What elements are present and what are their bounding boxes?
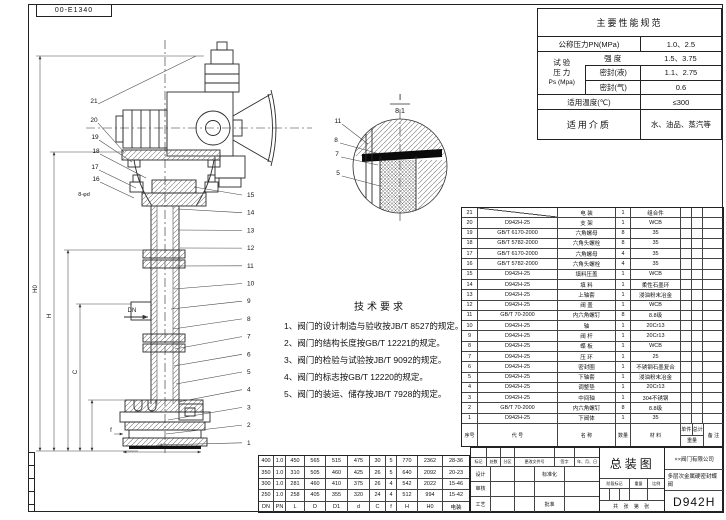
table-cell: 3 — [462, 393, 478, 402]
table-cell: 浸油粉末冶金 — [631, 290, 681, 299]
table-cell: 565 — [305, 456, 326, 466]
spec-seal-liquid-label: 密封(液) — [585, 66, 639, 80]
balloon-label: 7 — [335, 151, 339, 158]
balloon-label: 13 — [247, 227, 255, 234]
table-cell: D942H-25 — [478, 362, 558, 371]
table-cell — [692, 414, 703, 423]
table-cell: 8 — [616, 403, 631, 412]
table-cell — [703, 290, 723, 299]
table-cell: 2022 — [418, 479, 443, 489]
table-cell: 1 — [616, 414, 631, 423]
table-cell: 柔性石墨环 — [631, 280, 681, 289]
table-cell: 20-23 — [443, 467, 469, 477]
table-cell: GB/T 5782-2000 — [478, 259, 558, 268]
table-cell: 1.0 — [274, 479, 286, 489]
table-cell: 8 — [616, 229, 631, 238]
table-cell: 8 — [616, 239, 631, 248]
table-cell: 15-42 — [443, 490, 469, 500]
table-cell — [703, 373, 723, 382]
leader-line — [178, 209, 242, 213]
table-row: 14D942H-25填 料1柔性石墨环 — [462, 280, 723, 290]
table-cell: D942H-25 — [478, 301, 558, 310]
table-cell: 六角螺母 — [558, 229, 616, 238]
table-cell — [681, 352, 692, 361]
detail-view-scale: 8:1 — [395, 108, 405, 115]
stage-mark-label: 阶段标记 — [600, 479, 630, 489]
balloon-label: 2 — [247, 422, 251, 429]
table-cell: 1 — [616, 383, 631, 392]
revision-header-row: 标记 处数 分区 更改文件号 签字 年、月、日 — [471, 458, 599, 468]
parts-table-header: 序号 代 号 名 称 数量 材 料 单件 总计 重量 备 注 — [462, 424, 723, 446]
table-row: 2501.025840535532024451299415-42 — [259, 490, 469, 501]
table-cell — [703, 229, 723, 238]
table-cell: 13 — [462, 290, 478, 299]
revision-signature-area: 标记 处数 分区 更改文件号 签字 年、月、日 设计 标准化 审核 工艺 — [471, 448, 600, 512]
tech-req-title: 技术要求 — [284, 299, 476, 316]
dim-label: H0 — [33, 285, 39, 293]
balloon-label: 14 — [247, 210, 255, 217]
table-cell: 355 — [326, 490, 348, 500]
table-cell — [681, 393, 692, 402]
table-row: 3001.0281460410375264542202215-46 — [259, 479, 469, 490]
table-cell: 1 — [616, 208, 631, 217]
table-cell: 25 — [631, 352, 681, 361]
process-row: 工艺 批准 — [471, 497, 599, 513]
table-cell — [692, 290, 703, 299]
table-cell — [703, 352, 723, 361]
balloon-label: 10 — [247, 281, 255, 288]
table-cell: 内六角螺钉 — [558, 403, 616, 412]
table-cell: 六角头螺栓 — [558, 259, 616, 268]
table-cell: 320 — [348, 490, 370, 500]
col-header-weight: 单件 总计 重量 — [681, 424, 704, 446]
table-cell: D942H-25 — [478, 331, 558, 340]
table-cell: GB/T 70-2000 — [478, 403, 558, 412]
table-cell — [703, 249, 723, 258]
table-cell: 310 — [286, 467, 305, 477]
leader-line — [176, 372, 242, 384]
table-cell — [681, 218, 692, 227]
table-cell: D942H-25 — [478, 280, 558, 289]
table-cell — [681, 239, 692, 248]
table-cell — [692, 218, 703, 227]
dimension-table: 4001.0450565515475305770236228-363501.03… — [258, 455, 470, 513]
table-cell: 1 — [616, 270, 631, 279]
table-cell — [703, 239, 723, 248]
performance-spec-table: 主要性能规范 公称压力PN(MPa) 1.0、2.5 试 验 压 力 Ps (M… — [537, 8, 722, 140]
dim-label: DN — [128, 308, 137, 314]
table-row: 21电 装1组合件 — [462, 208, 723, 218]
balloon-label: 7 — [247, 334, 251, 341]
col-header-name: 名 称 — [558, 424, 616, 446]
product-name: 多层次金属硬密封蝶阀 — [665, 470, 723, 491]
title-right-area: ××阀门有限公司 多层次金属硬密封蝶阀 D942H — [665, 448, 723, 512]
table-cell: H — [397, 502, 418, 512]
table-cell — [692, 301, 703, 310]
table-cell: 上轴套 — [558, 290, 616, 299]
table-cell — [692, 373, 703, 382]
table-cell: L — [286, 502, 305, 512]
balloon-label: 20 — [90, 117, 98, 124]
table-cell: D942H-25 — [478, 290, 558, 299]
table-cell — [703, 259, 723, 268]
table-cell — [692, 270, 703, 279]
table-cell: 5 — [386, 467, 397, 477]
table-cell: 24 — [370, 490, 386, 500]
table-cell: 18 — [462, 239, 478, 248]
table-cell — [681, 383, 692, 392]
table-cell — [681, 280, 692, 289]
check-row: 审核 — [471, 482, 599, 497]
table-cell: 4 — [462, 383, 478, 392]
table-cell: 1 — [616, 362, 631, 371]
table-cell: D — [305, 502, 326, 512]
dim-label: L — [160, 443, 164, 450]
balloon-label: 5 — [247, 369, 251, 376]
table-cell: WCB — [631, 342, 681, 351]
table-cell: 10 — [462, 321, 478, 330]
table-cell: 组合件 — [631, 208, 681, 217]
parts-list-table: 21电 装1组合件20D942H-25支 架1WCB19GB/T 6170-20… — [461, 207, 724, 447]
table-cell — [681, 270, 692, 279]
table-cell: 1 — [616, 393, 631, 402]
table-cell: 下轴套 — [558, 373, 616, 382]
table-cell — [681, 414, 692, 423]
table-cell: 304不锈钢 — [631, 393, 681, 402]
table-row: 3D942H-25中间轴1304不锈钢 — [462, 393, 723, 403]
table-cell — [692, 239, 703, 248]
spec-strength-label: 强 度 — [585, 52, 639, 66]
table-row: 5D942H-25下轴套1浸油粉末冶金 — [462, 373, 723, 383]
table-cell — [703, 331, 723, 340]
table-cell: 1 — [616, 218, 631, 227]
table-cell: 35 — [631, 249, 681, 258]
table-cell: f — [386, 502, 397, 512]
table-cell: 填 料 — [558, 280, 616, 289]
table-row: 19GB/T 6170-2000六角螺母835 — [462, 229, 723, 239]
table-row: 3501.0310505460425265640209220-23 — [259, 467, 469, 478]
leader-line — [99, 170, 136, 188]
table-row: 6D942H-25密封圈1不锈钢石墨复合 — [462, 362, 723, 372]
table-cell: 六角螺母 — [558, 249, 616, 258]
table-cell: 11 — [462, 311, 478, 320]
design-row: 设计 标准化 — [471, 467, 599, 482]
table-cell: 2362 — [418, 456, 443, 466]
table-cell: 350 — [259, 467, 274, 477]
table-cell — [703, 393, 723, 402]
table-row: 9D942H-25阀 杆120Cr13 — [462, 331, 723, 341]
balloon-label: 3 — [247, 404, 251, 411]
detail-view-label: I — [399, 92, 401, 102]
table-cell: PN — [274, 502, 286, 512]
table-cell — [703, 414, 723, 423]
table-row: 12D942H-25阀 盖1WCB — [462, 301, 723, 311]
table-cell: GB/T 6170-2000 — [478, 249, 558, 258]
table-cell — [692, 342, 703, 351]
table-cell — [692, 383, 703, 392]
balloon-label: 17 — [91, 164, 99, 171]
table-cell: D942H-25 — [478, 321, 558, 330]
title-mid-area: 总装图 阶段标记 重量 比例 共 张 第 张 — [600, 448, 665, 512]
table-row: 7D942H-25压 环125 — [462, 352, 723, 362]
table-cell — [681, 311, 692, 320]
title-block: 标记 处数 分区 更改文件号 签字 年、月、日 设计 标准化 审核 工艺 — [470, 447, 724, 513]
table-cell — [692, 362, 703, 371]
table-cell: 410 — [326, 479, 348, 489]
table-cell: 电 装 — [558, 208, 616, 217]
table-cell: 2 — [462, 403, 478, 412]
table-cell: 支 架 — [558, 218, 616, 227]
table-cell — [703, 301, 723, 310]
balloon-label: 21 — [90, 98, 98, 105]
table-cell: 21 — [462, 208, 478, 217]
table-row: 8D942H-25蝶 板1WCB — [462, 342, 723, 352]
balloon-label: 9 — [247, 298, 251, 305]
table-cell: D942H-25 — [478, 270, 558, 279]
table-cell: 浸油粉末冶金 — [631, 373, 681, 382]
tech-req-item: 1、阀门的设计制造与验收按JB/T 8527的规定。 — [284, 318, 476, 335]
revision-empty-row — [471, 448, 599, 458]
table-cell — [692, 259, 703, 268]
table-cell: 中间轴 — [558, 393, 616, 402]
table-cell: 20Cr13 — [631, 321, 681, 330]
table-cell: 475 — [348, 456, 370, 466]
table-cell: 1 — [616, 280, 631, 289]
table-cell: H0 — [418, 502, 443, 512]
table-cell — [703, 280, 723, 289]
table-cell: 下阀体 — [558, 414, 616, 423]
table-cell — [692, 352, 703, 361]
table-cell — [692, 311, 703, 320]
table-cell: 5 — [386, 456, 397, 466]
table-cell: 阀 盖 — [558, 301, 616, 310]
table-cell: 26 — [370, 479, 386, 489]
table-cell — [692, 229, 703, 238]
dim-label: C — [73, 369, 79, 374]
table-cell — [681, 321, 692, 330]
table-cell: 35 — [631, 229, 681, 238]
col-header-qty: 数量 — [616, 424, 631, 446]
col-header-remark: 备 注 — [704, 424, 723, 446]
table-cell — [681, 331, 692, 340]
leader-line — [178, 390, 242, 402]
spec-pn-label: 公称压力PN(MPa) — [538, 37, 640, 51]
table-cell: 蝶 板 — [558, 342, 616, 351]
table-cell: 1 — [616, 301, 631, 310]
table-cell: 8 — [616, 311, 631, 320]
table-cell: 不锈钢石墨复合 — [631, 362, 681, 371]
table-cell — [692, 280, 703, 289]
role-design: 设计 — [471, 467, 491, 482]
table-cell: 六角头螺栓 — [558, 239, 616, 248]
leader-line — [98, 123, 124, 152]
balloon-label: 11 — [335, 118, 342, 125]
balloon-label: 8 — [247, 316, 251, 323]
table-cell: 515 — [326, 456, 348, 466]
spec-seal-gas-label: 密封(气) — [585, 81, 639, 94]
table-row: 15D942H-25填料压盖1WCB — [462, 270, 723, 280]
role-check: 审核 — [471, 482, 491, 497]
company-name: ××阀门有限公司 — [665, 448, 723, 470]
engineering-drawing-sheet: 00-E1340 — [0, 0, 726, 520]
table-cell: 15-46 — [443, 479, 469, 489]
table-cell: D1 — [326, 502, 348, 512]
table-cell — [692, 331, 703, 340]
table-cell: 375 — [348, 479, 370, 489]
leader-line — [174, 354, 242, 366]
balloon-label: 8 — [334, 137, 338, 144]
table-cell: 35 — [631, 414, 681, 423]
table-cell: 542 — [397, 479, 418, 489]
table-cell — [692, 393, 703, 402]
table-cell: 14 — [462, 280, 478, 289]
table-cell — [703, 218, 723, 227]
leader-line — [342, 124, 368, 144]
table-cell: 250 — [259, 490, 274, 500]
table-cell: 4 — [386, 490, 397, 500]
table-header-row: DNPNLDD1dCfHH0电装 — [259, 502, 469, 512]
table-cell: 电装 — [443, 502, 469, 512]
table-cell — [703, 383, 723, 392]
table-cell: DN — [259, 502, 274, 512]
table-row: 16GB/T 5782-2000六角头螺栓435 — [462, 259, 723, 269]
table-cell: 1 — [616, 321, 631, 330]
sheet-count: 共 张 第 张 — [600, 501, 664, 512]
table-row: 20D942H-25支 架1WCB — [462, 218, 723, 228]
table-cell: 调整垫 — [558, 383, 616, 392]
table-cell: 1.0 — [274, 490, 286, 500]
table-cell: D942H-25 — [478, 342, 558, 351]
table-cell — [692, 249, 703, 258]
table-cell: 密封圈 — [558, 362, 616, 371]
table-cell: 35 — [631, 239, 681, 248]
spec-pn-value: 1.0、2.5 — [640, 37, 721, 51]
leader-line — [98, 56, 196, 104]
table-row: 10D942H-25轴120Cr13 — [462, 321, 723, 331]
table-cell — [692, 208, 703, 217]
balloon-label: 4 — [247, 387, 251, 394]
table-cell: 8.8级 — [631, 311, 681, 320]
dim-label: H — [47, 314, 53, 318]
table-cell: 填料压盖 — [558, 270, 616, 279]
table-cell: 内六角螺钉 — [558, 311, 616, 320]
table-row: 4D942H-25调整垫120Cr13 — [462, 383, 723, 393]
leader-line — [174, 284, 242, 290]
tech-req-item: 4、阀门的标志按GB/T 12220的规定。 — [284, 369, 476, 386]
balloon-label: 11 — [247, 263, 254, 270]
table-cell: 12 — [462, 301, 478, 310]
spec-seal-gas-value: 0.6 — [640, 81, 721, 94]
table-cell: 阀 杆 — [558, 331, 616, 340]
table-cell: 1.0 — [274, 467, 286, 477]
table-cell: 512 — [397, 490, 418, 500]
balloon-label: 1 — [247, 440, 251, 447]
table-cell: GB/T 6170-2000 — [478, 229, 558, 238]
table-cell: 1 — [616, 342, 631, 351]
table-cell: 770 — [397, 456, 418, 466]
table-cell: D942H-25 — [478, 373, 558, 382]
balloon-label: 5 — [336, 170, 340, 177]
table-cell: GB/T 5782-2000 — [478, 239, 558, 248]
table-cell: 35 — [631, 259, 681, 268]
table-cell: 30 — [370, 456, 386, 466]
table-cell: 5 — [462, 373, 478, 382]
tech-req-item: 3、阀门的检验与试验按JB/T 9092的规定。 — [284, 352, 476, 369]
table-cell — [692, 403, 703, 412]
table-cell: 1 — [616, 373, 631, 382]
table-cell — [703, 208, 723, 217]
balloon-label: 18 — [92, 148, 100, 155]
table-cell — [681, 290, 692, 299]
table-cell: 26 — [370, 467, 386, 477]
margin-ticks — [28, 452, 35, 512]
balloon-label: 15 — [247, 192, 255, 199]
role-standard: 标准化 — [535, 467, 565, 482]
table-cell: 压 环 — [558, 352, 616, 361]
table-cell: 8 — [462, 342, 478, 351]
table-cell: 9 — [462, 331, 478, 340]
table-cell — [703, 311, 723, 320]
model-number: D942H — [665, 491, 723, 512]
table-cell — [703, 342, 723, 351]
balloon-label: 19 — [91, 134, 99, 141]
table-cell: 450 — [286, 456, 305, 466]
table-cell: C — [370, 502, 386, 512]
table-cell: 300 — [259, 479, 274, 489]
table-cell: 轴 — [558, 321, 616, 330]
table-row: 1D942H-25下阀体135 — [462, 414, 723, 424]
table-cell: 405 — [305, 490, 326, 500]
table-cell — [681, 373, 692, 382]
table-cell: 6 — [462, 362, 478, 371]
table-cell: 400 — [259, 456, 274, 466]
table-cell: d — [348, 502, 370, 512]
table-cell: 994 — [418, 490, 443, 500]
table-cell — [681, 301, 692, 310]
table-cell: 19 — [462, 229, 478, 238]
table-cell — [681, 208, 692, 217]
table-cell: 4 — [616, 249, 631, 258]
table-cell: 281 — [286, 479, 305, 489]
table-cell: GB/T 70-2000 — [478, 311, 558, 320]
table-cell: 505 — [305, 467, 326, 477]
table-cell: 460 — [326, 467, 348, 477]
spec-temp-label: 适用温度(℃) — [538, 95, 640, 109]
table-cell: D942H-25 — [478, 352, 558, 361]
drawing-title: 总装图 — [600, 448, 664, 479]
table-row: 17GB/T 6170-2000六角螺母435 — [462, 249, 723, 259]
spec-strength-value: 1.5、3.75 — [640, 52, 721, 66]
table-cell: 17 — [462, 249, 478, 258]
balloon-label: 16 — [92, 176, 100, 183]
spec-seal-liquid-value: 1.1、2.75 — [640, 66, 721, 80]
spec-title: 主要性能规范 — [538, 9, 721, 36]
table-cell — [681, 342, 692, 351]
table-cell: WCB — [631, 301, 681, 310]
table-row: 2GB/T 70-2000内六角螺钉88.8级 — [462, 403, 723, 413]
table-cell: D942H-25 — [478, 414, 558, 423]
col-header-code: 代 号 — [478, 424, 558, 446]
role-process: 工艺 — [471, 497, 491, 513]
table-cell — [703, 321, 723, 330]
table-cell: 20Cr13 — [631, 383, 681, 392]
table-cell — [681, 229, 692, 238]
table-cell — [681, 362, 692, 371]
table-row: 13D942H-25上轴套1浸油粉末冶金 — [462, 290, 723, 300]
table-cell: 16 — [462, 259, 478, 268]
table-row: 4001.0450565515475305770236228-36 — [259, 456, 469, 467]
table-cell: D942H-25 — [478, 383, 558, 392]
